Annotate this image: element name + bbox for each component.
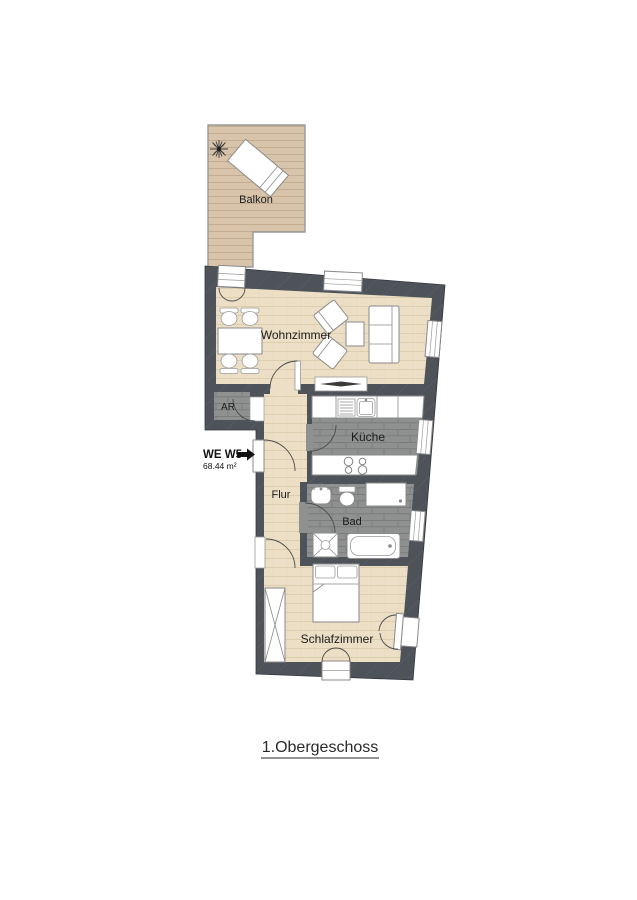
room-label-bedroom: Schlafzimmer [301, 632, 374, 646]
window-kitchen-right [416, 419, 433, 454]
room-label-storage: AR [221, 402, 235, 413]
room-label-kitchen: Küche [351, 430, 385, 444]
toilet [339, 487, 355, 507]
dining-chair [220, 354, 238, 374]
tv-sideboard [315, 377, 367, 391]
unit-annotation: WE W5 68.44 m² [203, 449, 255, 472]
plant-icon [210, 140, 228, 158]
floor-title: 1.Obergeschoss [261, 739, 379, 758]
dining-table [218, 328, 262, 354]
bathtub [347, 534, 400, 559]
kitchen-sink [357, 399, 375, 417]
balcony-area: Balkon [208, 125, 305, 267]
floor-plan-page: Balkon [0, 0, 637, 900]
unit-id-label: WE W5 [203, 449, 243, 461]
pillow [338, 566, 358, 578]
washing-machine [366, 483, 406, 506]
unit-area-label: 68.44 m² [203, 461, 237, 471]
sofa [369, 306, 399, 363]
room-label-bath: Bad [342, 516, 362, 528]
window-living-top [324, 271, 363, 292]
floor-plan-svg: Balkon [0, 0, 637, 900]
shower [313, 533, 338, 557]
kitchen-counter-stove [312, 455, 418, 475]
coffee-table [346, 322, 364, 346]
room-label-balcony: Balkon [239, 194, 273, 206]
window-bath-right [409, 510, 425, 541]
dining-chair [220, 308, 238, 326]
room-label-living: Wohnzimmer [261, 328, 331, 342]
dining-chair [241, 354, 259, 374]
floor-title-text: 1.Obergeschoss [262, 739, 379, 756]
bed [313, 564, 359, 622]
room-label-hall: Flur [272, 489, 291, 501]
wardrobe [265, 588, 285, 662]
window-living-right [425, 320, 442, 357]
kitchen-counter-top [312, 396, 424, 418]
pillow [316, 566, 336, 578]
dining-chair [241, 308, 259, 326]
dish-drainer [338, 399, 355, 416]
